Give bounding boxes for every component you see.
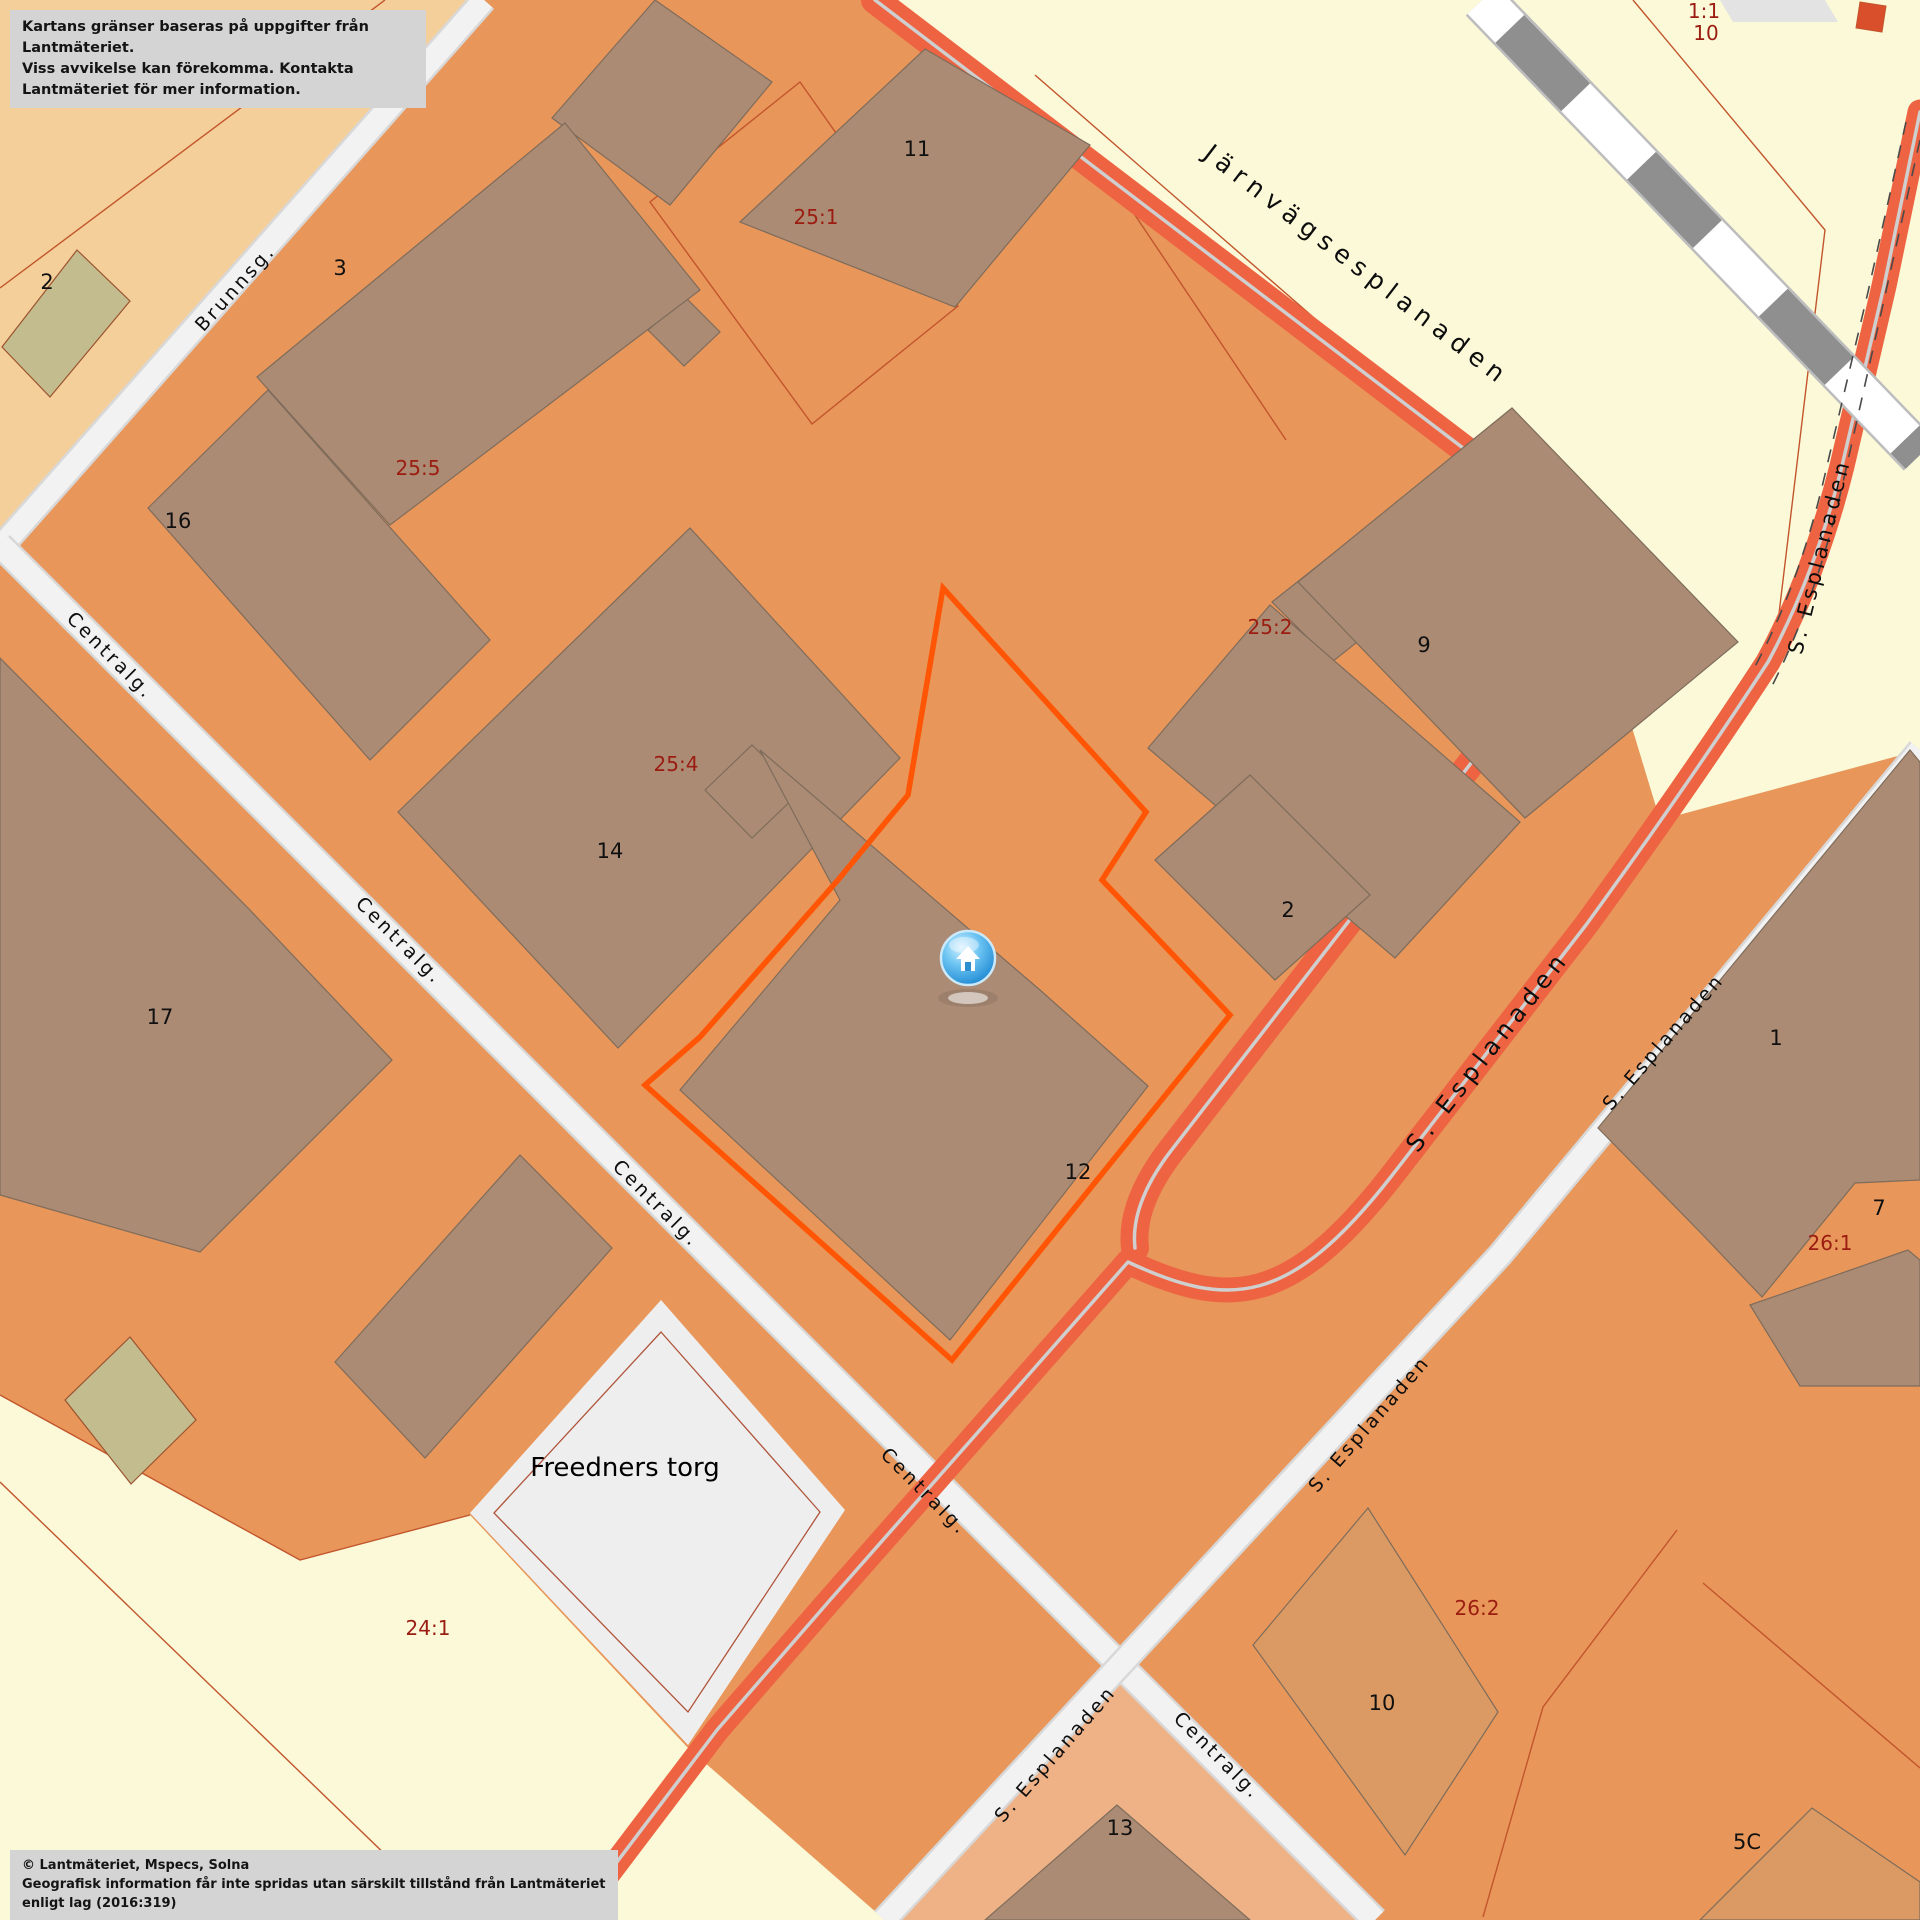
building-label-11: 11 [904, 137, 931, 161]
parcel-label-24-1: 24:1 [406, 1616, 451, 1640]
building-label-1: 1 [1769, 1026, 1782, 1050]
building-label-2-center: 2 [1281, 898, 1294, 922]
plaza-top-right [1720, 0, 1838, 22]
building-label-3: 3 [333, 256, 346, 280]
disclaimer-line-2: Viss avvikelse kan förekomma. Kontakta L… [22, 59, 414, 101]
map-viewport[interactable]: Brunnsg. Centralg. Centralg. Centralg. C… [0, 0, 1920, 1920]
map-disclaimer: Kartans gränser baseras på uppgifter frå… [10, 10, 426, 108]
building-label-12: 12 [1065, 1160, 1092, 1184]
parcel-label-25-2: 25:2 [1248, 615, 1293, 639]
home-marker[interactable] [938, 931, 998, 1007]
disclaimer-line-1: Kartans gränser baseras på uppgifter frå… [22, 17, 414, 59]
attribution-line-2: Geografisk information får inte spridas … [22, 1876, 606, 1914]
house-door [965, 962, 971, 971]
marker-shadow-glow [948, 992, 988, 1004]
attribution-line-1: © Lantmäteriet, Mspecs, Solna [22, 1857, 606, 1876]
building-label-7: 7 [1872, 1196, 1885, 1220]
building-label-13: 13 [1107, 1816, 1134, 1840]
building-top-right-corner [1856, 2, 1886, 32]
building-label-5c: 5C [1733, 1830, 1761, 1854]
parcel-label-1-1-10: 10 [1693, 21, 1718, 45]
parcel-label-25-5: 25:5 [396, 456, 441, 480]
building-label-14: 14 [597, 839, 624, 863]
parcel-label-26-2: 26:2 [1455, 1596, 1500, 1620]
building-label-2-topleft: 2 [40, 270, 53, 294]
parcel-label-26-1: 26:1 [1808, 1231, 1853, 1255]
parcel-label-25-1: 25:1 [794, 205, 839, 229]
map-canvas[interactable]: Brunnsg. Centralg. Centralg. Centralg. C… [0, 0, 1920, 1920]
building-label-9: 9 [1417, 633, 1430, 657]
building-label-16: 16 [165, 509, 192, 533]
building-label-17: 17 [147, 1005, 174, 1029]
parcel-label-1-1: 1:1 [1688, 0, 1720, 23]
building-label-10: 10 [1369, 1691, 1396, 1715]
map-attribution: © Lantmäteriet, Mspecs, Solna Geografisk… [10, 1850, 618, 1920]
place-label-freedners-torg: Freedners torg [530, 1453, 720, 1483]
parcel-label-25-4: 25:4 [654, 752, 699, 776]
